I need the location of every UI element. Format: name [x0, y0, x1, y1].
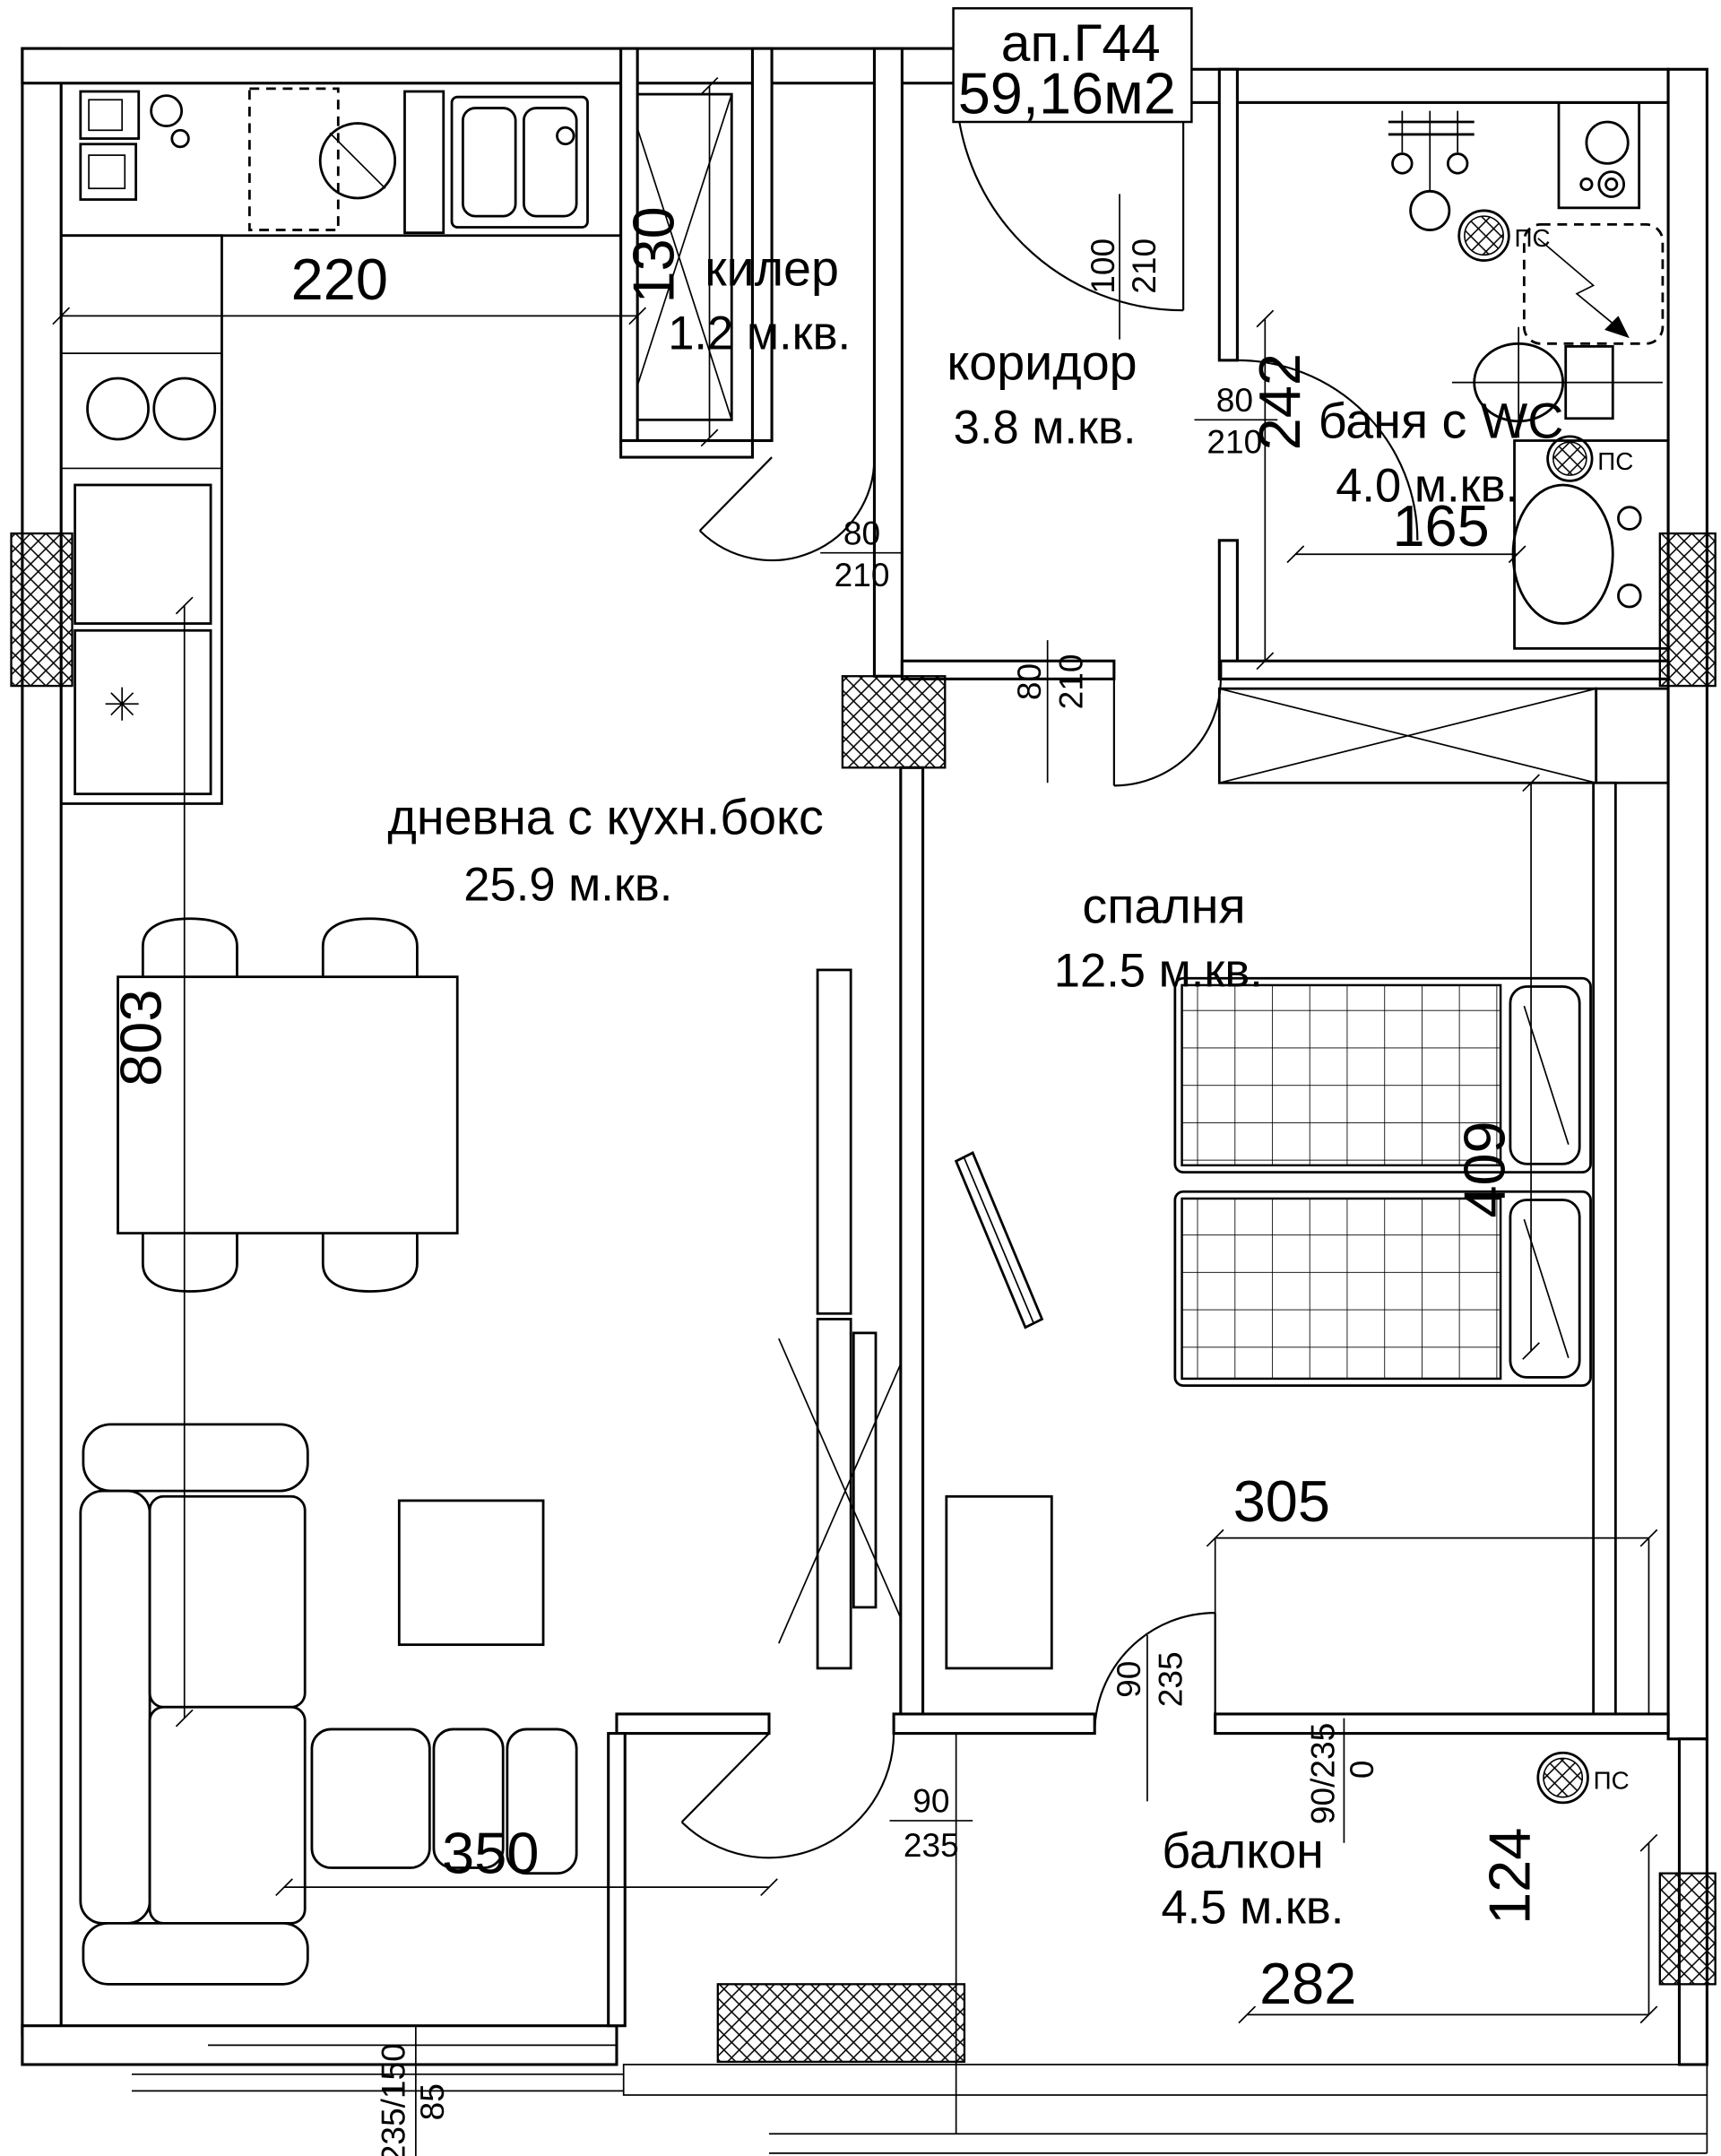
- kitchen-block: [61, 83, 620, 804]
- vent-shaft-label: ПС: [1597, 447, 1633, 475]
- bedroom-desk: [947, 1496, 1051, 1668]
- mattress-icon: [1182, 1199, 1500, 1379]
- room-label-bedroom-area: 12.5 м.кв.: [1054, 944, 1263, 997]
- floor-plan-sheet: ПС ПС ПС ап.Г44 59,16м2 килер 1.2 м.кв. …: [0, 0, 1721, 2156]
- wall-balcony-3: [1215, 1714, 1668, 1734]
- chair-icon: [143, 919, 237, 977]
- dim-storage-width: 130: [620, 206, 686, 303]
- wall-corridor-bath-upper: [1219, 69, 1237, 360]
- title-block: ап.Г44 59,16м2: [954, 8, 1192, 126]
- chair-icon: [143, 1234, 237, 1292]
- bathroom-door-width: 80: [1216, 381, 1253, 419]
- window-sill: 85: [413, 2083, 451, 2120]
- bedroom-door: [1114, 679, 1221, 785]
- headboard-strip: [1594, 783, 1616, 1714]
- bathroom-fixtures: [1388, 102, 1668, 648]
- dim-living-width: 350: [442, 1821, 539, 1886]
- wall-balcony-1: [617, 1714, 769, 1734]
- bedroom-furniture: [947, 688, 1668, 1714]
- entrance-door-height: 210: [1125, 238, 1163, 294]
- room-label-bathroom-name: баня с WC: [1319, 393, 1564, 448]
- dim-balcony-depth: 124: [1477, 1828, 1543, 1925]
- coffee-table: [399, 1501, 543, 1645]
- floor-plan-drawing: ПС ПС ПС ап.Г44 59,16м2 килер 1.2 м.кв. …: [0, 0, 1721, 2156]
- wall-top: [22, 48, 956, 83]
- dim-bedroom-width: 305: [1233, 1468, 1330, 1534]
- balcony-door-note: 90/235: [1304, 1723, 1342, 1824]
- column-icon: [843, 676, 945, 767]
- wall-storage-bottom: [621, 441, 753, 458]
- wall-living-bedroom: [901, 767, 923, 1714]
- washbasin-icon: [1513, 441, 1668, 649]
- room-label-balcony-area: 4.5 м.кв.: [1161, 1881, 1344, 1934]
- living-door-width: 80: [843, 514, 880, 551]
- wall-alcove: [609, 1734, 626, 2026]
- chair-icon: [323, 1234, 417, 1292]
- apartment-area: 59,16м2: [958, 61, 1176, 126]
- entrance-door-width: 100: [1084, 238, 1121, 294]
- shower-fitting-icon: [1388, 111, 1475, 230]
- tv-unit: [779, 970, 912, 1668]
- washing-machine-icon: [1559, 102, 1639, 207]
- wall-tv-icon: [956, 1153, 1042, 1328]
- room-label-corridor-area: 3.8 м.кв.: [954, 402, 1137, 455]
- vent-shaft-label: ПС: [1515, 224, 1551, 252]
- wall-left: [22, 48, 61, 2034]
- pillow-icon: [1510, 986, 1579, 1164]
- room-label-balcony-name: балкон: [1162, 1823, 1324, 1879]
- room-label-storage-area: 1.2 м.кв.: [668, 307, 851, 359]
- dim-living-length: 803: [108, 990, 173, 1087]
- vent-shaft-icon: ПС: [1538, 1753, 1630, 1803]
- room-label-living-area: 25.9 м.кв.: [463, 859, 672, 912]
- bedroom-door-height: 210: [1051, 654, 1089, 710]
- vent-shaft-label: ПС: [1594, 1766, 1630, 1794]
- tv-icon: [853, 1333, 876, 1607]
- vent-shaft-icon: ПС: [1459, 211, 1551, 261]
- dim-balcony-width: 282: [1259, 1951, 1356, 2016]
- bedroom-balcony-door-width: 90: [1110, 1661, 1147, 1698]
- window-spec: 235/150: [374, 2043, 411, 2156]
- bed-2: [1175, 1191, 1591, 1385]
- room-label-storage-name: килер: [705, 240, 839, 296]
- column-icon: [1660, 533, 1716, 686]
- wall-balcony-2: [894, 1714, 1094, 1734]
- dining-set: [118, 919, 458, 1292]
- room-label-living-name: дневна с кухн.бокс: [387, 789, 823, 844]
- dim-bedroom-length: 409: [1452, 1121, 1518, 1217]
- dim-kitchen-run: 220: [291, 247, 388, 312]
- bedroom-balcony-door-height: 235: [1152, 1651, 1189, 1707]
- wall-bedroom-top-2: [1221, 661, 1668, 679]
- bedroom-door-width: 80: [1010, 663, 1048, 700]
- bed-1: [1175, 978, 1591, 1172]
- column-icon: [1660, 1874, 1716, 1985]
- living-door-height: 210: [835, 556, 890, 593]
- wall-right: [1668, 69, 1707, 1738]
- living-balcony-door-height: 235: [904, 1826, 959, 1864]
- column-icon: [12, 533, 73, 686]
- dim-bathroom-width: 165: [1392, 493, 1489, 558]
- balcony-door-note-offset: 0: [1343, 1760, 1380, 1779]
- chair-icon: [323, 919, 417, 977]
- wall-corridor-bath-lower: [1219, 541, 1237, 680]
- kitchen-sink-icon: [452, 97, 587, 227]
- living-balcony-door: [682, 1734, 894, 1858]
- living-balcony-door-width: 90: [912, 1782, 949, 1820]
- room-label-bedroom-name: спалня: [1082, 878, 1245, 933]
- pillow-icon: [1510, 1200, 1579, 1378]
- sofa: [81, 1424, 307, 1984]
- wardrobe: [1219, 688, 1668, 783]
- bathroom-door-height: 210: [1206, 422, 1262, 460]
- column-icon: [718, 1984, 964, 2062]
- balcony-slab: [132, 2065, 1707, 2153]
- wall-top-bathroom: [1183, 69, 1668, 102]
- room-label-corridor-name: коридор: [947, 335, 1137, 391]
